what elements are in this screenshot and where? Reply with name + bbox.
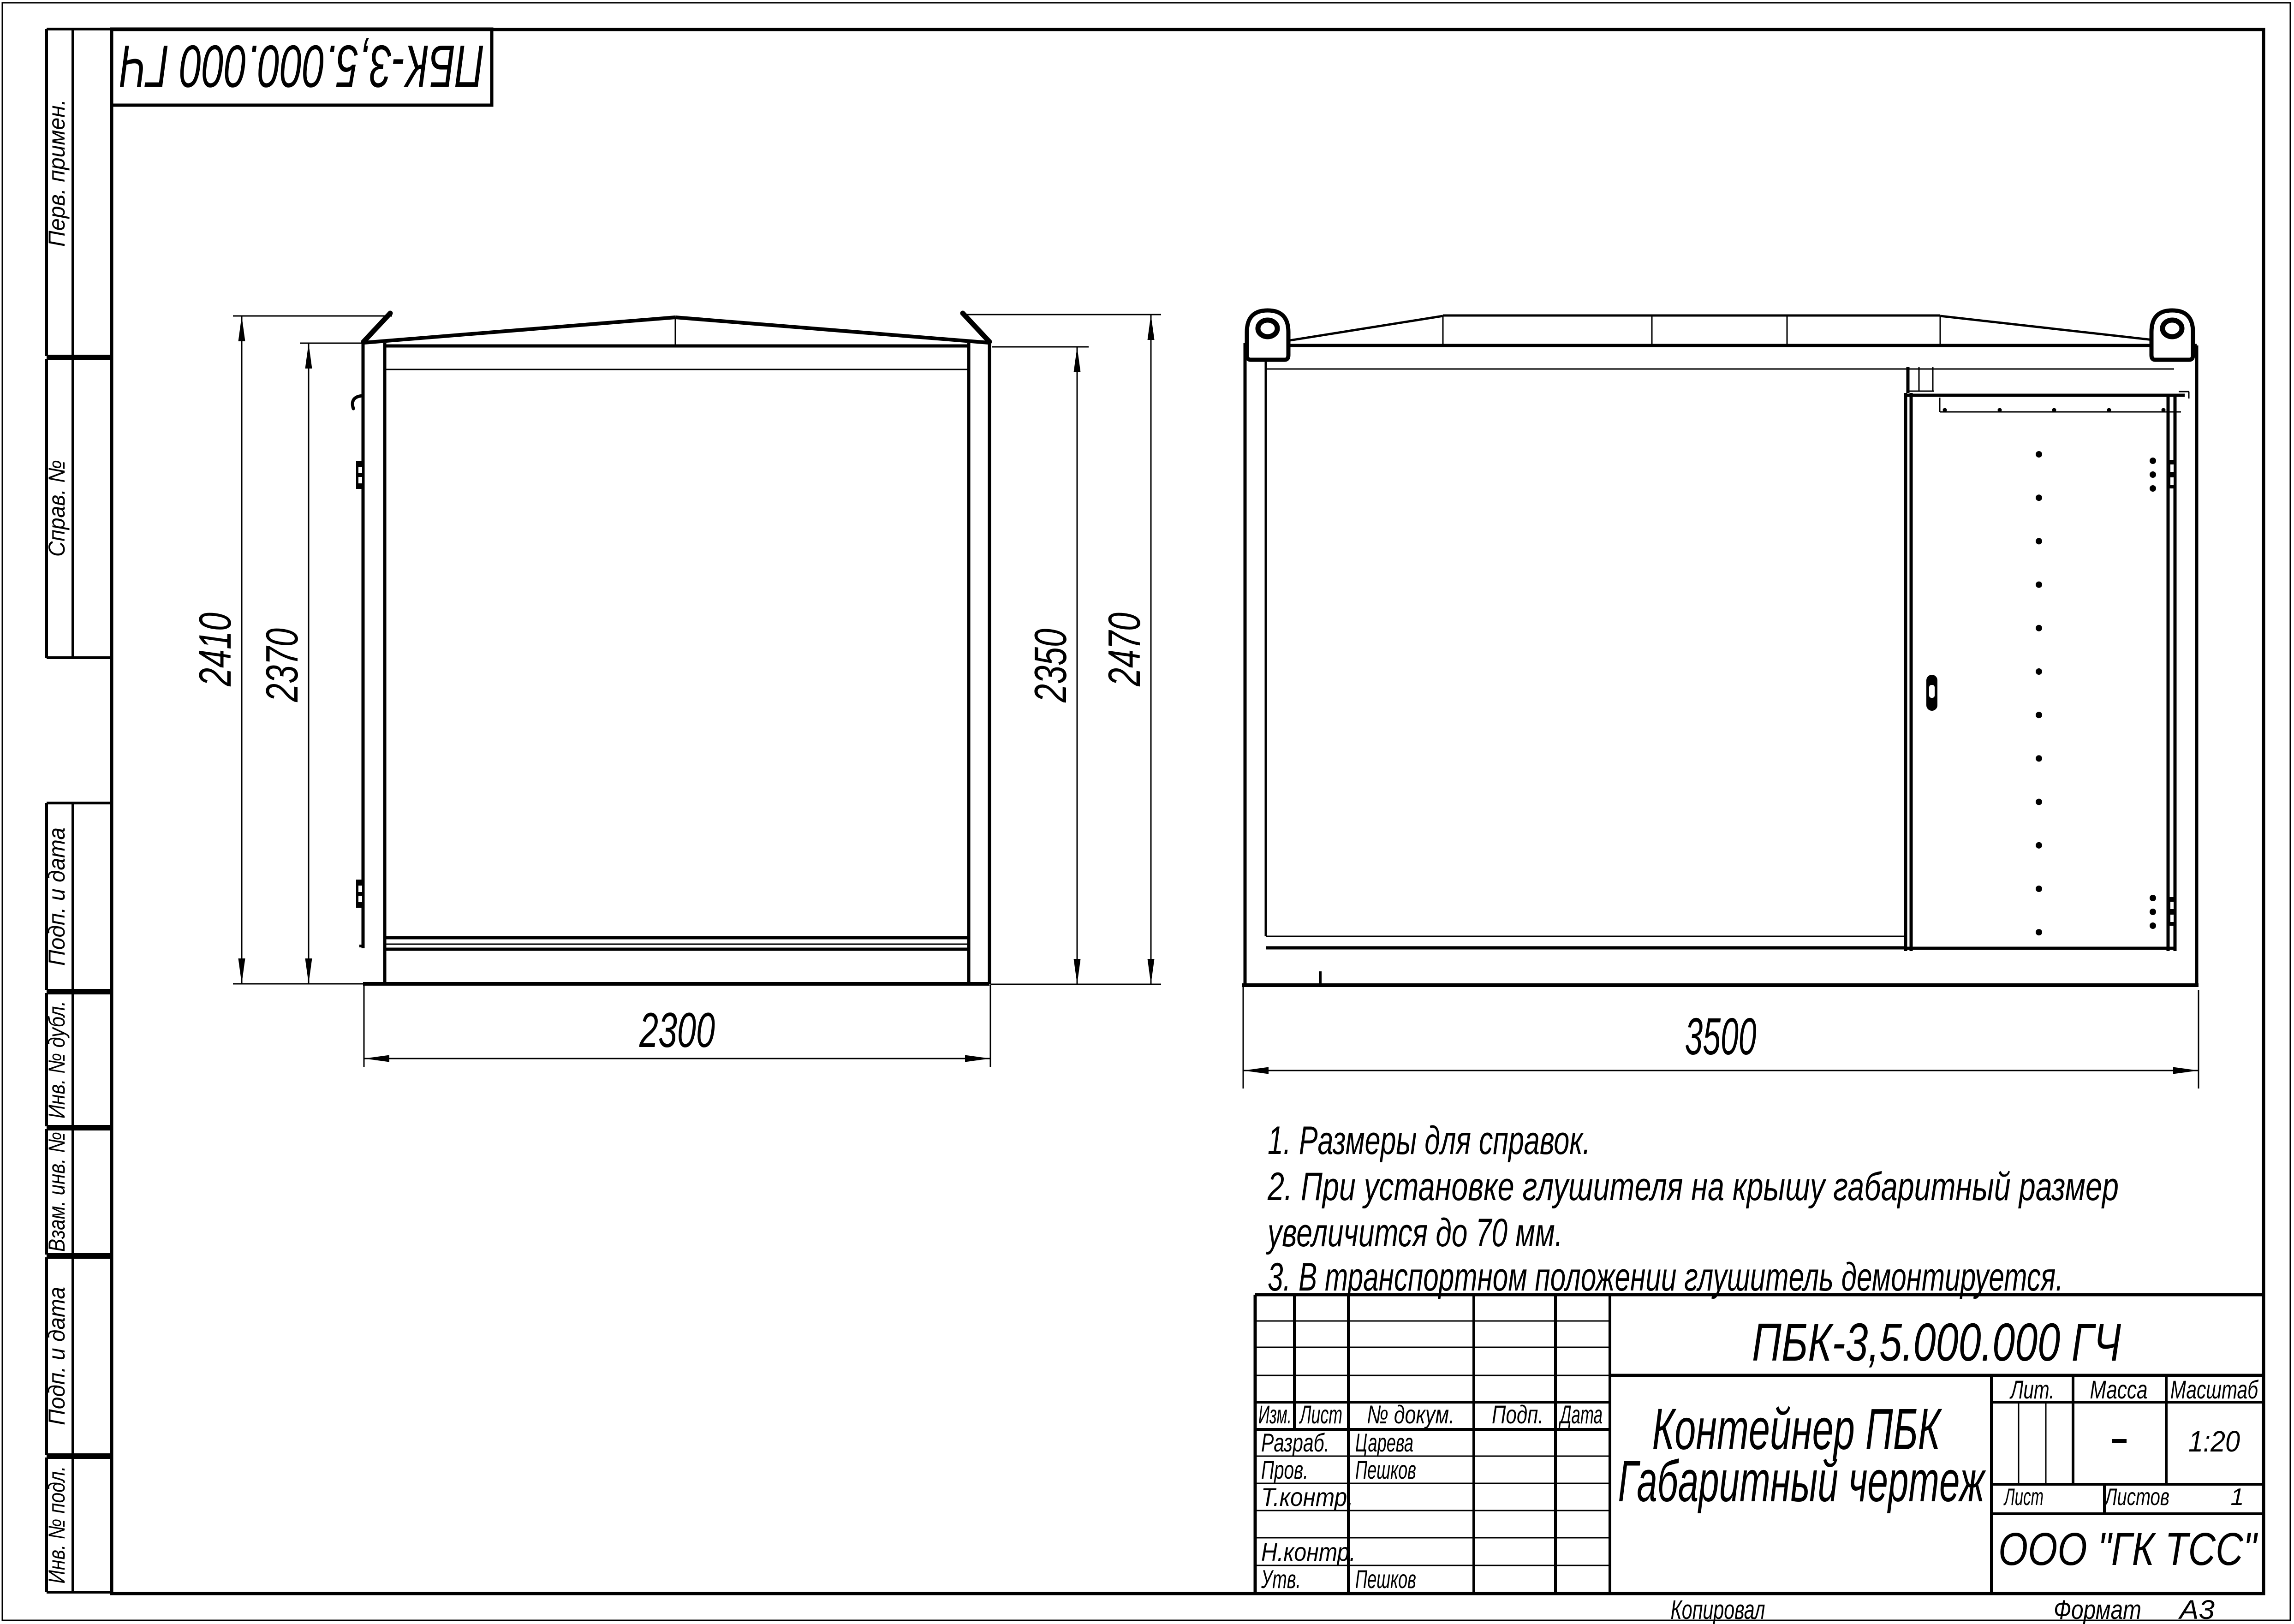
- svg-text:2300: 2300: [639, 1002, 715, 1058]
- svg-text:3. В транспортном положении г: 3. В транспортном положении глушитель де…: [1268, 1255, 2063, 1299]
- svg-text:1. Размеры для справок.: 1. Размеры для справок.: [1268, 1118, 1591, 1163]
- svg-text:Формат: Формат: [2054, 1595, 2141, 1624]
- svg-text:2370: 2370: [256, 628, 307, 702]
- svg-text:Т.контр.: Т.контр.: [1261, 1482, 1353, 1511]
- svg-text:2350: 2350: [1025, 629, 1076, 703]
- svg-text:Листов: Листов: [2104, 1484, 2169, 1511]
- svg-text:Подп.: Подп.: [1492, 1400, 1543, 1429]
- svg-text:Инв. № дубл.: Инв. № дубл.: [44, 1001, 70, 1118]
- svg-text:Пешков: Пешков: [1355, 1565, 1416, 1594]
- svg-text:Лит.: Лит.: [2009, 1375, 2054, 1404]
- svg-text:Взам. инв. №: Взам. инв. №: [44, 1132, 70, 1252]
- svg-text:2470: 2470: [1099, 613, 1150, 687]
- svg-text:1:20: 1:20: [2188, 1425, 2240, 1458]
- svg-text:Пров.: Пров.: [1261, 1455, 1308, 1484]
- svg-text:1: 1: [2231, 1484, 2244, 1511]
- svg-text:Изм.: Изм.: [1258, 1400, 1292, 1429]
- svg-text:Масса: Масса: [2090, 1375, 2148, 1404]
- svg-text:3500: 3500: [1685, 1007, 1757, 1065]
- svg-text:Пешков: Пешков: [1355, 1455, 1416, 1484]
- svg-text:Лист: Лист: [2003, 1484, 2044, 1511]
- svg-text:А3: А3: [2178, 1595, 2215, 1624]
- svg-text:Копировал: Копировал: [1671, 1595, 1765, 1624]
- svg-text:Н.контр.: Н.контр.: [1261, 1537, 1356, 1566]
- svg-text:№ докум.: № докум.: [1367, 1400, 1454, 1429]
- svg-text:Дата: Дата: [1558, 1400, 1603, 1429]
- svg-text:Утв.: Утв.: [1261, 1565, 1301, 1594]
- svg-text:Инв. № подл.: Инв. № подл.: [44, 1466, 70, 1584]
- svg-text:Подп. и дата: Подп. и дата: [44, 1287, 70, 1425]
- svg-text:Лист: Лист: [1299, 1400, 1342, 1429]
- svg-text:увеличится до 70 мм.: увеличится до 70 мм.: [1266, 1211, 1563, 1255]
- svg-text:Перв. примен.: Перв. примен.: [44, 99, 70, 247]
- svg-text:2. При установке глушителя: 2. При установке глушителя на крышу габа…: [1267, 1165, 2119, 1209]
- svg-text:Царева: Царева: [1355, 1428, 1413, 1457]
- svg-text:Подп. и дата: Подп. и дата: [44, 827, 70, 966]
- svg-text:ООО "ГК ТСС": ООО "ГК ТСС": [1998, 1523, 2258, 1575]
- svg-text:Разраб.: Разраб.: [1261, 1428, 1329, 1457]
- svg-text:Габаритный чертеж: Габаритный чертеж: [1618, 1449, 1986, 1514]
- svg-text:ПБК-3,5.000.000 ГЧ: ПБК-3,5.000.000 ГЧ: [1752, 1312, 2121, 1372]
- svg-text:ПБК-3,5.000.000 ГЧ: ПБК-3,5.000.000 ГЧ: [120, 33, 484, 100]
- svg-text:2410: 2410: [190, 613, 240, 687]
- svg-text:Справ. №: Справ. №: [44, 460, 70, 557]
- svg-text:Масштаб: Масштаб: [2170, 1375, 2259, 1404]
